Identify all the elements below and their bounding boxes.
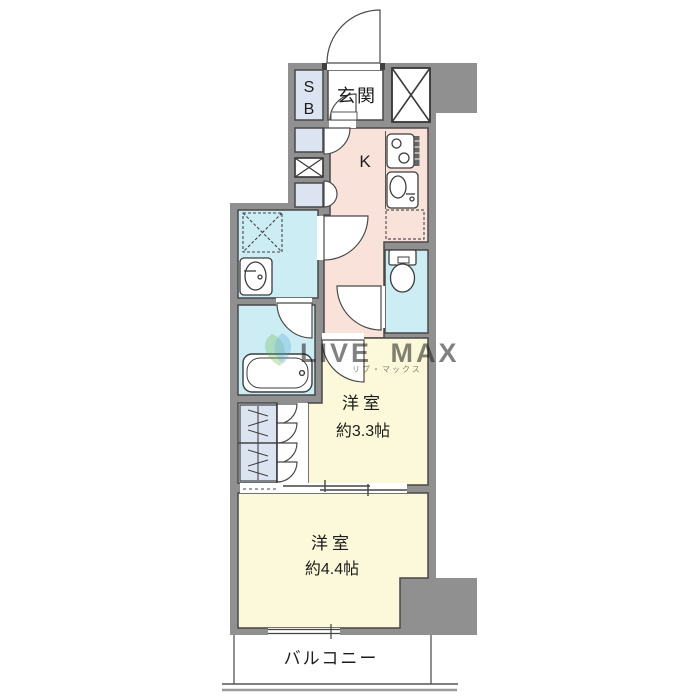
floorplan-drawing: LIVE MAX リブ・マックス S B 玄関 K 洋室 約3.3帖 洋室 約4… xyxy=(0,0,700,700)
wall-box-divider-3 xyxy=(295,177,323,183)
kitchen-label: K xyxy=(359,152,371,171)
wall-bottom-b xyxy=(340,628,400,635)
genkan-step xyxy=(331,112,357,120)
room1-size-label: 約3.3帖 xyxy=(336,422,390,440)
genkan-doorway xyxy=(329,120,356,128)
wall-block-top-right xyxy=(430,63,477,113)
balcony-label: バルコニー xyxy=(284,649,379,668)
wall-block-bottom-right xyxy=(400,578,477,635)
room2-size-label: 約4.4帖 xyxy=(305,560,359,578)
wall-box-divider-1 xyxy=(295,120,328,128)
toilet-icon xyxy=(389,250,416,292)
shoe-box-label-b: B xyxy=(304,101,315,118)
wall-bath-top-b xyxy=(312,298,322,305)
entrance-label: 玄関 xyxy=(337,86,377,106)
kitchen-sink-icon xyxy=(387,172,418,208)
storage-box-lower xyxy=(295,183,323,207)
sliding-door-opening xyxy=(277,483,407,493)
wall-genkan-bottom xyxy=(356,120,384,128)
shoe-box-label-s: S xyxy=(304,79,315,96)
watermark-text: LIVE MAX xyxy=(300,338,460,368)
wall-bath-top-a xyxy=(238,298,276,305)
room2-name-label: 洋室 xyxy=(311,534,353,553)
floorplan-canvas: LIVE MAX リブ・マックス S B 玄関 K 洋室 約3.3帖 洋室 約4… xyxy=(0,0,700,700)
room1-name-label: 洋室 xyxy=(342,394,384,413)
wall-left-lower xyxy=(230,203,238,635)
wall-bottom-a xyxy=(230,628,268,635)
wall-box-divider-2 xyxy=(295,152,323,158)
wall-right xyxy=(428,70,436,578)
watermark-subtext: リブ・マックス xyxy=(352,364,422,374)
wall-washroom-cap xyxy=(230,203,295,210)
storage-box-upper xyxy=(295,128,323,152)
wall-left-upper xyxy=(288,63,295,210)
entrance-doorway xyxy=(327,63,380,70)
entrance-door-swing xyxy=(327,10,380,63)
wall-entrance-shaft-divider xyxy=(383,63,392,128)
wall-bath-bottom xyxy=(238,395,322,403)
gas-stove-icon xyxy=(387,134,420,168)
vanity-sink-icon xyxy=(240,258,272,295)
closet-under-opening xyxy=(240,483,277,493)
